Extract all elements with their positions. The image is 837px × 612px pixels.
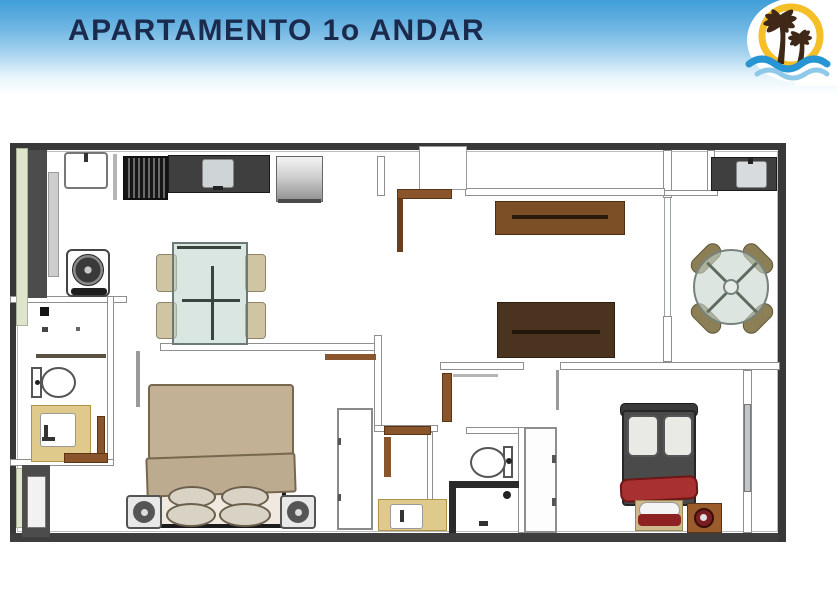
outer-wall-right	[778, 143, 786, 542]
floor-plan	[10, 143, 786, 542]
bed1-blanket	[145, 452, 296, 497]
shower1-head	[40, 307, 49, 316]
washer-drum	[72, 254, 104, 286]
page-title: APARTAMENTO 1o ANDAR	[68, 14, 485, 48]
bedroom2-wardrobe	[524, 427, 557, 533]
bed2-blanket	[619, 475, 698, 503]
bed1-pillow-2	[166, 503, 216, 527]
entry-landing	[419, 146, 467, 190]
kitchen-faucet	[213, 186, 223, 190]
entry-console	[397, 189, 452, 199]
wardrobe-handle-2	[552, 498, 556, 506]
wall-entry-left	[377, 156, 385, 196]
door-swing-bedroom2	[556, 370, 559, 410]
dining-table	[172, 242, 248, 345]
bath2-door	[442, 373, 452, 422]
toilet1-button	[35, 380, 40, 385]
sink2	[390, 504, 423, 529]
bed1-speaker-right-dot	[295, 509, 302, 516]
bedroom2-window	[744, 404, 751, 492]
balcony-sink	[736, 161, 767, 188]
tv-panel-groove	[512, 330, 600, 334]
balcony-glass-door	[664, 198, 671, 316]
page: APARTAMENTO 1o ANDAR	[0, 0, 837, 612]
wall-suite-top-left	[440, 362, 524, 370]
shower2-mark	[479, 521, 488, 526]
bed2-pillow-left	[627, 415, 659, 457]
closet-mirror	[27, 476, 46, 528]
wall-suite-top-right	[560, 362, 780, 370]
service-counter	[48, 172, 59, 277]
wall-balcony-nook	[660, 190, 718, 196]
dining-chair-se	[245, 302, 266, 339]
round-table-center	[723, 279, 739, 295]
wardrobe-handle-1	[552, 455, 556, 463]
bed2-pillow-right	[663, 415, 693, 457]
cabinet-knob-1	[338, 438, 341, 445]
fridge	[276, 156, 323, 202]
entry-door	[397, 199, 403, 252]
bed2-folded-red	[638, 514, 681, 526]
sink1-faucet-2	[42, 437, 55, 441]
wall-bath1-right	[107, 296, 114, 466]
sink2-faucet	[400, 510, 404, 522]
laundry-faucet	[84, 153, 88, 162]
wall-bath2-top	[466, 427, 522, 434]
door-swing-bedroom1	[136, 351, 140, 407]
shower2-drain	[503, 491, 511, 499]
washer-controls	[71, 288, 107, 295]
fridge-base	[278, 199, 321, 203]
resort-logo	[733, 0, 837, 86]
bed1-speaker-left-dot	[141, 509, 148, 516]
bed1-duvet	[148, 384, 294, 460]
service-cabinet	[28, 150, 47, 298]
sink1-faucet-1	[44, 425, 48, 437]
bed1-pillow-4	[219, 503, 271, 527]
kitchen-sink	[202, 159, 234, 188]
shower1-threshold	[36, 354, 106, 358]
shower1-dot	[76, 327, 80, 331]
wall-balcony-bottom	[663, 316, 672, 362]
header-band: APARTAMENTO 1o ANDAR	[0, 0, 837, 95]
palm-beach-logo-icon	[733, 0, 837, 86]
door-swing-bath2-line	[453, 374, 498, 377]
kitchen-divider	[113, 154, 117, 200]
wall-bedroom1-right	[374, 335, 382, 431]
sideboard-handle	[512, 215, 608, 219]
toilet1-bowl	[41, 367, 76, 398]
outer-wall-top	[10, 143, 786, 150]
nightstand2-knob	[700, 514, 707, 521]
dining-chair-ne	[245, 254, 266, 292]
outer-wall-bottom	[10, 533, 786, 542]
cabinet-knob-2	[338, 494, 341, 501]
service-wall-strip	[16, 148, 28, 326]
nook-towel-bar	[384, 437, 391, 477]
dining-table-cross-v	[211, 266, 214, 340]
living-shelf	[325, 354, 376, 360]
dining-table-line	[177, 246, 241, 249]
toilet2-button	[506, 458, 512, 464]
bedroom1-cabinet	[337, 408, 373, 530]
shower2-wall-left	[449, 481, 456, 533]
nook-shelf	[384, 426, 431, 435]
bath1-door-open	[64, 453, 108, 463]
wall-entry-right	[465, 188, 665, 196]
toilet2-bowl	[470, 447, 506, 478]
balcony-faucet	[748, 158, 753, 164]
stove	[123, 156, 168, 200]
shower1-drain	[42, 327, 48, 332]
shower2-wall-top	[449, 481, 519, 488]
